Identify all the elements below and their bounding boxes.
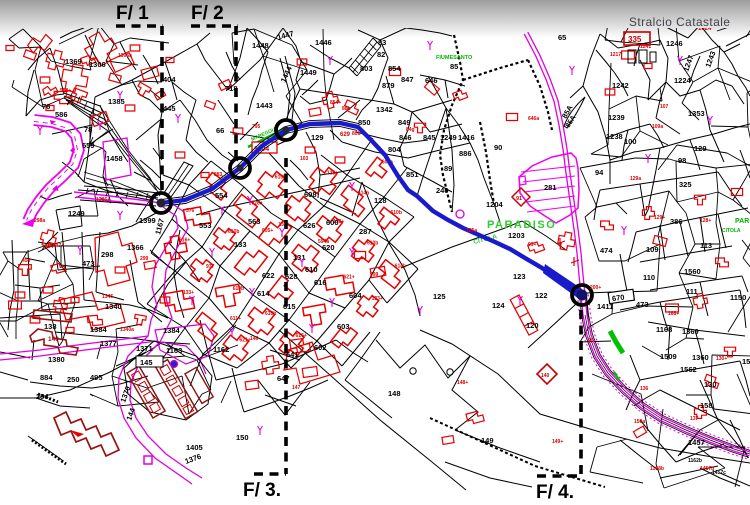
svg-text:80b: 80b — [352, 131, 361, 137]
svg-text:125: 125 — [433, 292, 446, 301]
svg-text:611+: 611+ — [230, 316, 241, 322]
svg-text:553: 553 — [199, 221, 212, 230]
svg-text:474: 474 — [600, 246, 613, 255]
svg-text:883: 883 — [214, 172, 223, 178]
svg-text:66: 66 — [216, 126, 224, 135]
svg-text:150: 150 — [742, 357, 750, 366]
svg-text:629: 629 — [340, 132, 351, 138]
svg-text:1345: 1345 — [102, 294, 113, 300]
svg-text:1457b: 1457b — [700, 466, 714, 472]
svg-text:83: 83 — [378, 38, 386, 47]
svg-text:1386+: 1386+ — [96, 197, 110, 203]
svg-text:1242: 1242 — [612, 81, 629, 90]
svg-text:886: 886 — [459, 149, 472, 158]
svg-text:495: 495 — [90, 373, 103, 382]
svg-text:109: 109 — [646, 245, 659, 254]
svg-text:615: 615 — [283, 302, 296, 311]
svg-text:445: 445 — [163, 104, 176, 113]
svg-text:616+: 616+ — [179, 238, 190, 244]
svg-text:133+: 133+ — [327, 170, 338, 176]
svg-text:1150: 1150 — [730, 293, 746, 302]
svg-text:473: 473 — [636, 300, 649, 309]
svg-text:554: 554 — [215, 191, 228, 200]
svg-text:614: 614 — [257, 289, 270, 298]
svg-text:149+: 149+ — [552, 439, 563, 445]
svg-text:133+: 133+ — [372, 296, 383, 302]
svg-text:137: 137 — [690, 416, 699, 422]
svg-text:136: 136 — [640, 386, 649, 392]
svg-text:614b: 614b — [358, 190, 369, 196]
svg-text:299: 299 — [140, 256, 149, 262]
svg-text:89: 89 — [444, 164, 452, 173]
svg-text:1217: 1217 — [610, 52, 621, 58]
svg-text:78: 78 — [84, 125, 92, 134]
svg-text:1411: 1411 — [597, 302, 613, 311]
svg-text:628a: 628a — [251, 200, 262, 206]
svg-text:250: 250 — [67, 375, 80, 384]
svg-text:1377: 1377 — [100, 339, 117, 348]
svg-text:F/ 4.: F/ 4. — [536, 482, 574, 500]
svg-text:977: 977 — [206, 264, 215, 270]
svg-text:1162b: 1162b — [688, 458, 702, 464]
svg-text:130+: 130+ — [716, 356, 727, 362]
svg-text:1249: 1249 — [68, 209, 85, 218]
svg-text:563: 563 — [248, 217, 261, 226]
svg-text:93+: 93+ — [528, 242, 537, 248]
svg-text:670: 670 — [611, 293, 625, 304]
svg-text:879: 879 — [382, 81, 395, 90]
svg-text:98: 98 — [678, 156, 686, 165]
svg-text:605+: 605+ — [262, 228, 273, 234]
svg-text:1168: 1168 — [656, 325, 672, 334]
svg-text:94: 94 — [595, 168, 604, 177]
svg-text:646: 646 — [425, 76, 438, 85]
svg-text:610b: 610b — [228, 229, 239, 235]
svg-text:1162: 1162 — [213, 345, 229, 354]
svg-text:FIUMESANTO: FIUMESANTO — [436, 55, 473, 61]
svg-text:1380: 1380 — [48, 355, 65, 364]
svg-text:133: 133 — [234, 240, 247, 249]
svg-text:1448: 1448 — [252, 41, 269, 50]
svg-text:616+: 616+ — [296, 333, 307, 339]
svg-text:F/ 2: F/ 2 — [191, 3, 224, 24]
svg-text:1371: 1371 — [136, 344, 153, 353]
svg-text:146: 146 — [250, 336, 259, 342]
svg-text:298: 298 — [101, 250, 114, 259]
svg-text:88b: 88b — [342, 106, 351, 112]
svg-text:404: 404 — [163, 75, 176, 84]
svg-text:628: 628 — [285, 272, 298, 281]
svg-text:131: 131 — [293, 253, 306, 262]
svg-text:1458: 1458 — [106, 154, 123, 163]
svg-text:1416: 1416 — [458, 133, 475, 142]
svg-text:559: 559 — [82, 141, 95, 150]
svg-text:1306a: 1306a — [118, 53, 132, 59]
svg-text:109a: 109a — [652, 124, 663, 130]
svg-text:1340a: 1340a — [120, 327, 134, 333]
svg-text:1369: 1369 — [65, 57, 82, 66]
svg-text:608: 608 — [304, 190, 317, 199]
svg-text:604: 604 — [349, 291, 362, 300]
svg-text:1342: 1342 — [376, 105, 393, 114]
svg-text:1509: 1509 — [660, 352, 677, 361]
svg-text:103: 103 — [300, 156, 309, 162]
svg-text:F/ 1: F/ 1 — [116, 3, 149, 24]
svg-text:1443: 1443 — [256, 101, 273, 110]
svg-text:85: 85 — [450, 62, 458, 71]
svg-text:PARADISO: PARADISO — [487, 219, 556, 231]
svg-text:558+: 558+ — [60, 88, 71, 94]
svg-text:128+: 128+ — [700, 218, 711, 224]
svg-text:846: 846 — [399, 133, 412, 142]
svg-text:610: 610 — [305, 265, 318, 274]
svg-text:1353: 1353 — [688, 109, 705, 118]
svg-text:100: 100 — [624, 137, 637, 146]
svg-text:129+: 129+ — [654, 215, 665, 221]
svg-text:718: 718 — [225, 84, 238, 93]
svg-text:Stralcio Catastale: Stralcio Catastale — [629, 15, 730, 29]
svg-text:1340: 1340 — [105, 302, 122, 311]
svg-text:184: 184 — [45, 244, 54, 250]
svg-text:884: 884 — [40, 373, 53, 382]
svg-text:1241: 1241 — [640, 44, 651, 50]
svg-text:854+: 854+ — [330, 100, 341, 106]
svg-text:851: 851 — [406, 170, 419, 179]
svg-text:113: 113 — [700, 241, 712, 250]
svg-text:325: 325 — [679, 180, 692, 189]
svg-text:1203: 1203 — [508, 231, 525, 240]
svg-text:1360: 1360 — [692, 353, 709, 362]
svg-text:849: 849 — [398, 118, 411, 127]
svg-text:641: 641 — [286, 350, 299, 359]
svg-text:610b: 610b — [391, 210, 402, 216]
svg-text:128: 128 — [374, 196, 387, 205]
svg-text:140: 140 — [541, 373, 550, 379]
svg-text:847: 847 — [401, 75, 414, 84]
svg-text:298a: 298a — [34, 218, 45, 224]
svg-text:129a: 129a — [630, 176, 641, 182]
svg-text:148: 148 — [388, 389, 401, 398]
svg-text:90: 90 — [494, 143, 502, 152]
svg-text:1560: 1560 — [684, 267, 701, 276]
svg-text:610b: 610b — [367, 241, 378, 247]
svg-text:129: 129 — [694, 144, 707, 153]
svg-text:1238: 1238 — [606, 132, 623, 141]
svg-text:145: 145 — [140, 358, 153, 367]
svg-text:1204: 1204 — [486, 200, 504, 209]
svg-text:473: 473 — [82, 259, 95, 268]
svg-text:120: 120 — [526, 321, 539, 330]
svg-text:111: 111 — [686, 287, 698, 296]
svg-text:91: 91 — [516, 196, 522, 202]
svg-text:PAR: PAR — [735, 218, 749, 225]
svg-text:586: 586 — [55, 110, 68, 119]
svg-text:1239: 1239 — [608, 113, 625, 122]
svg-text:133+: 133+ — [278, 222, 289, 228]
svg-text:125a: 125a — [466, 228, 477, 234]
svg-text:147: 147 — [292, 385, 301, 391]
svg-text:1168b: 1168b — [650, 466, 664, 472]
svg-text:646a: 646a — [528, 116, 539, 122]
svg-text:150a: 150a — [634, 419, 645, 425]
svg-text:133+: 133+ — [183, 290, 194, 296]
svg-text:200+: 200+ — [590, 285, 601, 291]
svg-text:1249: 1249 — [440, 133, 457, 142]
svg-text:845: 845 — [423, 133, 436, 142]
svg-text:803: 803 — [360, 64, 373, 73]
svg-text:107: 107 — [660, 104, 669, 110]
svg-text:254: 254 — [36, 392, 49, 401]
svg-text:110: 110 — [643, 273, 655, 282]
svg-text:1399: 1399 — [139, 216, 156, 225]
svg-text:124: 124 — [492, 301, 505, 310]
svg-text:1384: 1384 — [163, 326, 181, 335]
svg-text:130: 130 — [704, 380, 717, 389]
svg-text:622: 622 — [262, 271, 275, 280]
svg-text:82: 82 — [377, 50, 385, 59]
svg-text:148+: 148+ — [457, 380, 468, 386]
svg-text:850: 850 — [358, 118, 371, 127]
svg-text:1384: 1384 — [90, 325, 108, 334]
svg-text:65: 65 — [558, 33, 566, 42]
svg-text:122: 122 — [535, 291, 548, 300]
svg-text:1446: 1446 — [315, 38, 332, 47]
svg-text:1405: 1405 — [186, 443, 203, 452]
svg-text:240: 240 — [436, 186, 449, 195]
svg-text:795: 795 — [252, 124, 261, 130]
svg-text:123: 123 — [513, 272, 526, 281]
svg-text:621+: 621+ — [343, 274, 354, 280]
svg-text:84g: 84g — [406, 127, 415, 133]
svg-text:600: 600 — [326, 218, 339, 227]
svg-text:804: 804 — [388, 145, 401, 154]
svg-text:150: 150 — [236, 433, 249, 442]
svg-text:603: 603 — [337, 322, 350, 331]
svg-text:1562: 1562 — [680, 365, 697, 374]
svg-text:1457: 1457 — [688, 438, 705, 447]
svg-text:386: 386 — [670, 217, 683, 226]
svg-text:616: 616 — [314, 278, 327, 287]
svg-text:1449: 1449 — [300, 68, 317, 77]
svg-text:168+: 168+ — [668, 311, 679, 317]
svg-text:594a: 594a — [318, 239, 329, 245]
svg-text:1385: 1385 — [108, 97, 125, 106]
svg-text:610b: 610b — [265, 311, 276, 317]
svg-text:1366: 1366 — [127, 243, 144, 252]
svg-text:77: 77 — [66, 98, 74, 107]
svg-text:1306: 1306 — [89, 60, 106, 69]
svg-text:76: 76 — [42, 102, 50, 111]
svg-text:376: 376 — [186, 208, 195, 214]
svg-text:1246: 1246 — [666, 39, 683, 48]
svg-text:647: 647 — [277, 374, 290, 383]
svg-text:129: 129 — [311, 133, 324, 142]
svg-text:614b: 614b — [395, 263, 406, 269]
svg-text:138: 138 — [44, 322, 57, 331]
svg-text:149: 149 — [481, 436, 494, 445]
svg-text:281: 281 — [544, 183, 557, 192]
svg-text:454: 454 — [22, 258, 31, 264]
svg-text:1163: 1163 — [166, 346, 182, 355]
svg-text:158: 158 — [700, 401, 713, 410]
svg-text:1224: 1224 — [674, 76, 692, 85]
svg-text:610b: 610b — [233, 286, 244, 292]
svg-text:1369: 1369 — [682, 327, 699, 336]
svg-text:140: 140 — [48, 336, 59, 343]
svg-text:602: 602 — [314, 343, 327, 352]
svg-text:F/ 3.: F/ 3. — [243, 480, 281, 500]
svg-text:854: 854 — [388, 64, 401, 73]
svg-text:287: 287 — [359, 227, 372, 236]
svg-text:626: 626 — [303, 221, 316, 230]
svg-text:CITOLA: CITOLA — [722, 228, 741, 234]
svg-text:335: 335 — [628, 35, 642, 44]
svg-text:90: 90 — [588, 338, 594, 344]
svg-text:599: 599 — [370, 272, 379, 278]
